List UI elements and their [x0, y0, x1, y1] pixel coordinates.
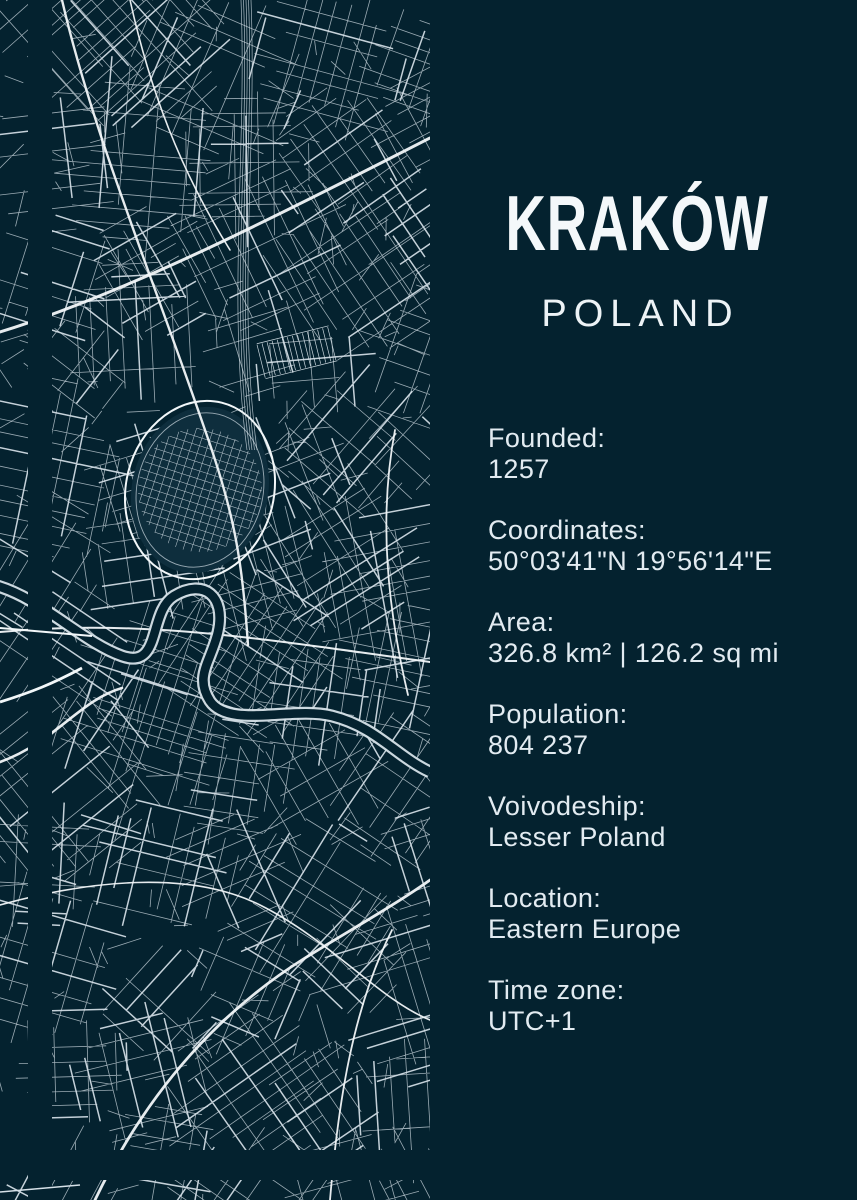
stat-label: Area:	[488, 607, 848, 638]
stat-label: Population:	[488, 699, 848, 730]
stat-coordinates: Coordinates: 50°03'41"N 19°56'14"E	[488, 515, 848, 577]
stat-value: 326.8 km² | 126.2 sq mi	[488, 638, 848, 669]
stat-population: Population: 804 237	[488, 699, 848, 761]
stat-label: Voivodeship:	[488, 791, 848, 822]
stat-area: Area: 326.8 km² | 126.2 sq mi	[488, 607, 848, 669]
stat-value: UTC+1	[488, 1006, 848, 1037]
city-poster: KRAKÓW POLAND Founded: 1257 Coordinates:…	[0, 0, 857, 1200]
stat-value: 50°03'41"N 19°56'14"E	[488, 546, 848, 577]
stat-value: 804 237	[488, 730, 848, 761]
stat-label: Founded:	[488, 423, 848, 454]
stat-timezone: Time zone: UTC+1	[488, 975, 848, 1037]
stat-value: Eastern Europe	[488, 914, 848, 945]
stat-label: Location:	[488, 883, 848, 914]
stat-value: Lesser Poland	[488, 822, 848, 853]
stat-location: Location: Eastern Europe	[488, 883, 848, 945]
country-subtitle: POLAND	[420, 294, 854, 336]
stat-label: Time zone:	[488, 975, 848, 1006]
stat-voivodeship: Voivodeship: Lesser Poland	[488, 791, 848, 853]
map-panel	[0, 0, 430, 1200]
city-stats: Founded: 1257 Coordinates: 50°03'41"N 19…	[488, 423, 848, 1067]
city-title: KRAKÓW	[481, 183, 793, 264]
stat-value: 1257	[488, 454, 848, 485]
stat-founded: Founded: 1257	[488, 423, 848, 485]
stat-label: Coordinates:	[488, 515, 848, 546]
city-map-svg	[0, 0, 430, 1200]
